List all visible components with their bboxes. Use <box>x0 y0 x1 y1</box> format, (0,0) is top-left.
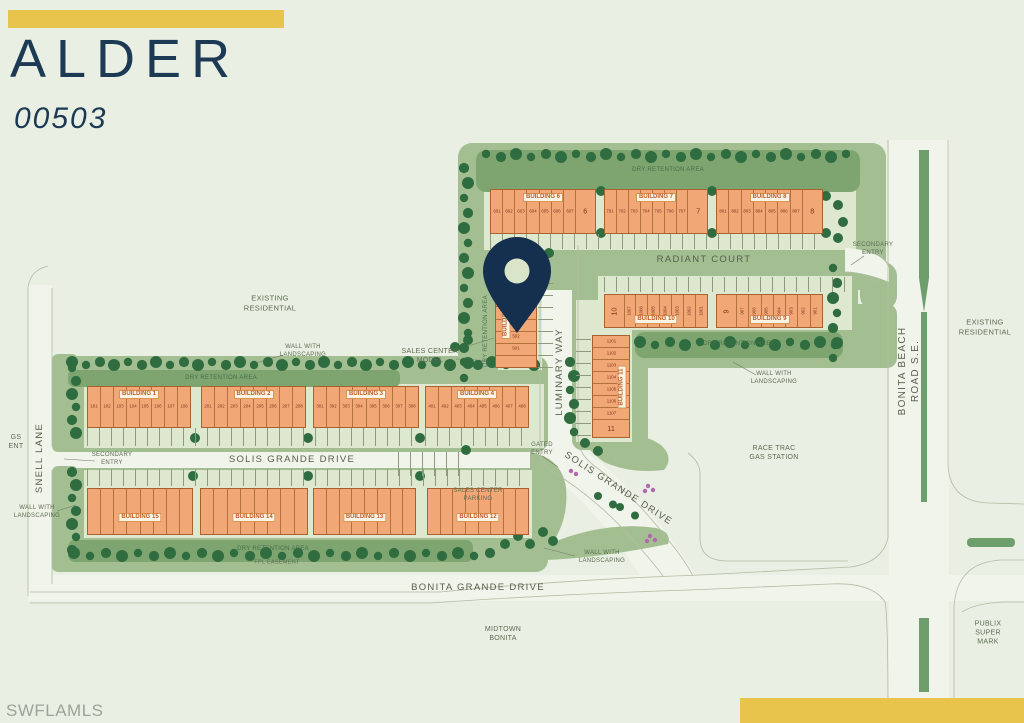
building-4-label: BUILDING 4 <box>457 390 497 399</box>
street-label-solis-grande-drive: SOLIS GRANDE DRIVE <box>229 454 355 466</box>
building-1: 101102103104105106107108 BUILDING 1 <box>87 386 191 428</box>
note-dry-retention-west-top: DRY RETENTION AREA <box>185 375 257 383</box>
parking-row <box>398 452 464 476</box>
street-label-luminary-way: LUMINARY WAY <box>554 328 566 416</box>
building-9: 9907906905904903902901 BUILDING 9 <box>716 294 823 328</box>
area-label-existing-residential-east: EXISTING RESIDENTIAL <box>959 317 1011 337</box>
building-13-label: BUILDING 13 <box>343 513 386 522</box>
building-3-label: BUILDING 3 <box>346 390 386 399</box>
building-10: 101007100610051004100310021001 BUILDING … <box>604 294 708 328</box>
parking-row <box>425 428 528 446</box>
parking-row <box>604 277 852 292</box>
building-14: BUILDING 14 <box>200 488 308 535</box>
street-label-bonita-grande-drive: BONITA GRANDE DRIVE <box>411 582 545 594</box>
note-wall-landscaping-left: WALL WITH LANDSCAPING <box>14 505 60 521</box>
building-13-units <box>314 489 415 534</box>
building-14-units <box>201 489 307 534</box>
building-2: 201202203204205206207208 BUILDING 2 <box>201 386 306 428</box>
area-label-publix: PUBLIX SUPER MARK <box>970 619 1006 646</box>
building-3: 301302303304305306307308 BUILDING 3 <box>313 386 419 428</box>
building-2-label: BUILDING 2 <box>233 390 273 399</box>
building-15: BUILDING 15 <box>87 488 193 535</box>
building-5-label: BUILDING 5 <box>502 299 511 339</box>
building-6: 6016026036046056066076 BUILDING 6 <box>490 189 596 234</box>
note-sales-center-model: SALES CENTER MODEL <box>402 347 459 365</box>
note-gated-entry: GATED ENTRY <box>531 442 553 458</box>
building-11: 110111021103110411051106110711 BUILDING … <box>592 335 630 438</box>
unit-number: 00503 <box>14 102 107 136</box>
parking-row <box>538 272 553 368</box>
note-secondary-entry-ne: SECONDARY ENTRY <box>853 242 894 258</box>
building-1-label: BUILDING 1 <box>119 390 159 399</box>
building-15-label: BUILDING 15 <box>118 513 161 522</box>
note-dry-retention-west-bottom: DRY RETENTION AREA <box>237 546 309 554</box>
building-11-label: BUILDING 11 <box>618 365 627 408</box>
parking-row <box>87 428 418 446</box>
street-label-solis-grande-drive-diagonal: SOLIS GRANDE DRIVE <box>562 449 675 528</box>
building-15-units <box>88 489 192 534</box>
area-label-race-trac: RACE TRAC GAS STATION <box>749 444 798 462</box>
gold-bar-bottom <box>740 698 1024 723</box>
note-wall-landscaping-west: WALL WITH LANDSCAPING <box>280 344 326 360</box>
gold-bar-top <box>8 10 284 28</box>
note-fpl-easement: FPL EASEMENT <box>254 559 299 566</box>
note-wall-landscaping-bottom: WALL WITH LANDSCAPING <box>579 550 625 566</box>
note-wall-landscaping-east: WALL WITH LANDSCAPING <box>751 371 797 387</box>
note-secondary-entry-west: SECONDARY ENTRY <box>92 452 133 468</box>
building-8-label: BUILDING 8 <box>749 193 789 202</box>
building-6-label: BUILDING 6 <box>523 193 563 202</box>
building-4: 401402403404405406407408 BUILDING 4 <box>425 386 529 428</box>
community-name: ALDER <box>10 28 240 90</box>
street-label-radiant-court: RADIANT COURT <box>657 254 752 266</box>
building-8: 8018028038048058068078 BUILDING 8 <box>716 189 823 234</box>
note-dry-retention-mid: DRY RETENTION AREA <box>703 341 775 349</box>
building-7: 7017027037047057067077 BUILDING 7 <box>604 189 708 234</box>
street-label-snell-lane: SNELL LANE <box>34 423 46 493</box>
building-5: 503502501 BUILDING 5 <box>495 270 537 368</box>
area-label-existing-residential-west: EXISTING RESIDENTIAL <box>244 293 296 313</box>
area-label-gs-ent: GS ENT <box>9 433 24 451</box>
area-label-midtown-bonita: MIDTOWN BONITA <box>485 625 521 643</box>
mls-watermark: SWFLAMLS <box>6 701 104 721</box>
building-9-label: BUILDING 9 <box>749 315 789 324</box>
site-plan-page: 101102103104105106107108 BUILDING 1 2012… <box>0 0 1024 723</box>
building-7-label: BUILDING 7 <box>636 193 676 202</box>
note-dry-retention-north: DRY RETENTION AREA <box>632 167 704 175</box>
building-13: BUILDING 13 <box>313 488 416 535</box>
parking-row <box>576 336 591 436</box>
note-dry-retention-vertical: DRY RETENTION AREA <box>483 295 491 367</box>
note-sales-center-parking: SALES CENTER PARKING <box>453 488 502 504</box>
building-12-label: BUILDING 12 <box>456 513 499 522</box>
street-label-bonita-beach-road: BONITA BEACH ROAD S.E. <box>896 314 922 429</box>
building-14-label: BUILDING 14 <box>232 513 275 522</box>
parking-row <box>490 234 822 249</box>
building-10-label: BUILDING 10 <box>634 315 677 324</box>
